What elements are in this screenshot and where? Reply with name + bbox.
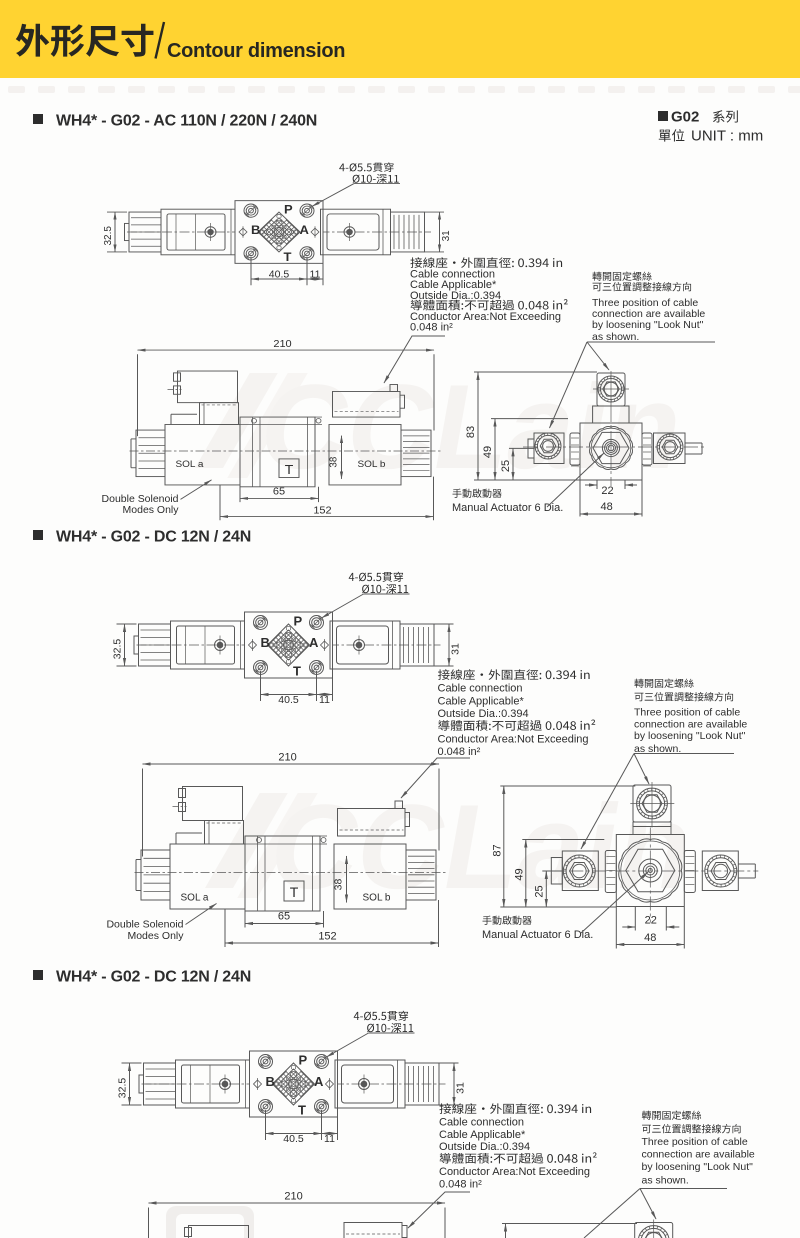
svg-text:Double Solenoid: Double Solenoid	[106, 919, 183, 931]
svg-text:B: B	[261, 635, 270, 650]
svg-text:0.048 in²: 0.048 in²	[438, 746, 481, 758]
svg-text:210: 210	[284, 1191, 302, 1203]
svg-text:11: 11	[319, 694, 330, 706]
svg-text:49: 49	[482, 446, 494, 458]
svg-text:A: A	[314, 1074, 324, 1089]
svg-text:32.5: 32.5	[117, 1078, 129, 1099]
svg-text:T: T	[284, 250, 292, 264]
svg-text:Modes Only: Modes Only	[123, 505, 180, 516]
svg-text:B: B	[251, 223, 260, 237]
svg-text:Cable Applicable*: Cable Applicable*	[438, 695, 525, 707]
svg-text:32.5: 32.5	[103, 226, 114, 246]
svg-text:65: 65	[278, 911, 290, 923]
svg-text:Cable connection: Cable connection	[439, 1116, 524, 1128]
svg-text:40.5: 40.5	[278, 694, 299, 706]
svg-text:83: 83	[465, 426, 477, 438]
svg-text:SOL a: SOL a	[181, 893, 209, 904]
svg-text:0.048 in²: 0.048 in²	[410, 322, 453, 334]
svg-text:38: 38	[333, 879, 345, 891]
svg-text:by loosening "Look Nut": by loosening "Look Nut"	[592, 319, 704, 331]
svg-text:38: 38	[328, 456, 339, 467]
svg-text:P: P	[294, 614, 303, 629]
svg-text:connection are available: connection are available	[634, 718, 747, 730]
svg-text:31: 31	[450, 643, 462, 655]
svg-text:G02: G02	[671, 109, 699, 126]
svg-text:P: P	[284, 203, 293, 217]
svg-text:210: 210	[273, 338, 291, 350]
svg-text:Outside Dia.:0.394: Outside Dia.:0.394	[438, 708, 529, 720]
svg-text:11: 11	[310, 270, 321, 281]
svg-text:Outside Dia.:0.394: Outside Dia.:0.394	[439, 1141, 530, 1153]
svg-text:T: T	[298, 1103, 306, 1118]
svg-text:32.5: 32.5	[112, 639, 124, 660]
svg-text:Three position of cable: Three position of cable	[634, 707, 740, 719]
svg-text:UNIT : mm: UNIT : mm	[691, 128, 763, 145]
svg-text:22: 22	[601, 485, 613, 497]
svg-text:by loosening "Look Nut": by loosening "Look Nut"	[634, 730, 746, 742]
svg-text:31: 31	[441, 230, 452, 241]
svg-text:Cable connection: Cable connection	[438, 683, 523, 695]
svg-text:WH4* - G02 - AC 110N / 220N /: WH4* - G02 - AC 110N / 220N / 240N	[56, 113, 317, 130]
svg-text:T: T	[285, 462, 294, 476]
svg-text:48: 48	[600, 501, 612, 513]
svg-text:B: B	[266, 1074, 275, 1089]
svg-text:152: 152	[313, 505, 331, 517]
svg-text:87: 87	[491, 844, 503, 856]
svg-text:A: A	[309, 635, 319, 650]
svg-text:210: 210	[278, 752, 296, 764]
svg-text:31: 31	[455, 1082, 467, 1094]
svg-text:Cable Applicable*: Cable Applicable*	[439, 1129, 526, 1141]
svg-text:Manual Actuator 6 Dia.: Manual Actuator 6 Dia.	[482, 929, 593, 941]
svg-text:152: 152	[318, 931, 336, 943]
svg-text:SOL b: SOL b	[363, 893, 391, 904]
svg-text:P: P	[299, 1053, 308, 1068]
svg-text:WH4* - G02 - DC 12N / 24N: WH4* - G02 - DC 12N / 24N	[56, 969, 251, 986]
svg-text:48: 48	[644, 932, 656, 944]
svg-text:0.048 in²: 0.048 in²	[439, 1178, 482, 1190]
svg-text:Manual Actuator 6 Dia.: Manual Actuator 6 Dia.	[452, 502, 563, 514]
svg-text:49: 49	[513, 868, 525, 880]
svg-text:as shown.: as shown.	[592, 331, 639, 343]
svg-text:Conductor Area:Not Exceeding: Conductor Area:Not Exceeding	[438, 734, 589, 746]
svg-text:Conductor Area:Not Exceeding: Conductor Area:Not Exceeding	[439, 1166, 590, 1178]
svg-text:Outside Dia.:0.394: Outside Dia.:0.394	[410, 290, 501, 302]
svg-text:11: 11	[324, 1133, 335, 1145]
svg-text:T: T	[290, 884, 299, 900]
svg-text:22: 22	[645, 915, 657, 927]
svg-text:Modes Only: Modes Only	[127, 930, 184, 942]
svg-text:Three position of cable: Three position of cable	[642, 1136, 748, 1148]
svg-text:T: T	[293, 664, 301, 679]
svg-text:Double Solenoid: Double Solenoid	[102, 494, 179, 505]
svg-text:25: 25	[533, 885, 545, 897]
svg-text:connection are available: connection are available	[642, 1149, 755, 1161]
svg-text:A: A	[300, 223, 309, 237]
svg-text:25: 25	[500, 460, 512, 472]
svg-text:SOL a: SOL a	[176, 459, 205, 470]
svg-text:40.5: 40.5	[269, 270, 290, 281]
svg-text:SOL b: SOL b	[358, 459, 386, 470]
svg-text:65: 65	[273, 486, 285, 498]
svg-text:WH4* - G02 - DC 12N / 24N: WH4* - G02 - DC 12N / 24N	[56, 529, 251, 546]
svg-text:as shown.: as shown.	[642, 1175, 689, 1187]
svg-text:by loosening "Look Nut": by loosening "Look Nut"	[642, 1161, 754, 1173]
svg-text:Contour dimension: Contour dimension	[167, 40, 345, 62]
svg-text:40.5: 40.5	[283, 1133, 304, 1145]
